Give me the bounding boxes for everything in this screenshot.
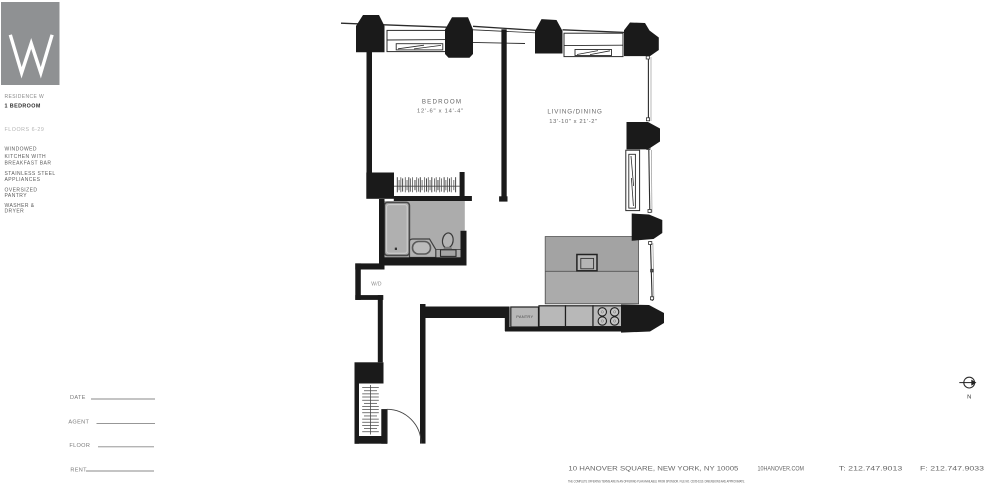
svg-text:THE COMPLETE OFFERING TERMS AR: THE COMPLETE OFFERING TERMS ARE IN AN OF… — [568, 480, 745, 484]
svg-text:N: N — [967, 395, 971, 401]
svg-text:T: 212.747.9013: T: 212.747.9013 — [839, 466, 903, 473]
svg-text:RENT: RENT — [70, 467, 87, 473]
svg-text:LIVING/DINING: LIVING/DINING — [547, 108, 602, 115]
svg-text:DATE: DATE — [70, 395, 86, 401]
svg-text:BREAKFAST BAR: BREAKFAST BAR — [5, 161, 52, 167]
svg-text:RESIDENCE W: RESIDENCE W — [5, 94, 45, 100]
svg-text:10 HANOVER SQUARE, NEW YORK, N: 10 HANOVER SQUARE, NEW YORK, NY 10005 — [568, 466, 738, 473]
svg-text:BEDROOM: BEDROOM — [422, 99, 462, 106]
svg-text:KITCHEN WITH: KITCHEN WITH — [5, 154, 47, 160]
svg-text:13'-10" x 21'-2": 13'-10" x 21'-2" — [549, 119, 597, 125]
svg-text:WINDOWED: WINDOWED — [5, 147, 37, 153]
svg-text:FLOOR: FLOOR — [69, 443, 90, 449]
svg-text:AGENT: AGENT — [68, 420, 89, 426]
svg-text:W/D: W/D — [371, 281, 382, 287]
svg-text:10HANOVER.COM: 10HANOVER.COM — [758, 466, 805, 473]
svg-text:1 BEDROOM: 1 BEDROOM — [5, 104, 41, 110]
svg-text:F: 212.747.9033: F: 212.747.9033 — [920, 466, 984, 473]
svg-text:PANTRY: PANTRY — [516, 314, 533, 319]
svg-text:APPLIANCES: APPLIANCES — [5, 177, 41, 183]
svg-text:PANTRY: PANTRY — [5, 193, 28, 199]
svg-text:12'-6" x 14'-4": 12'-6" x 14'-4" — [417, 108, 464, 114]
svg-text:DRYER: DRYER — [5, 209, 25, 215]
svg-text:FLOORS 6-29: FLOORS 6-29 — [5, 127, 45, 133]
